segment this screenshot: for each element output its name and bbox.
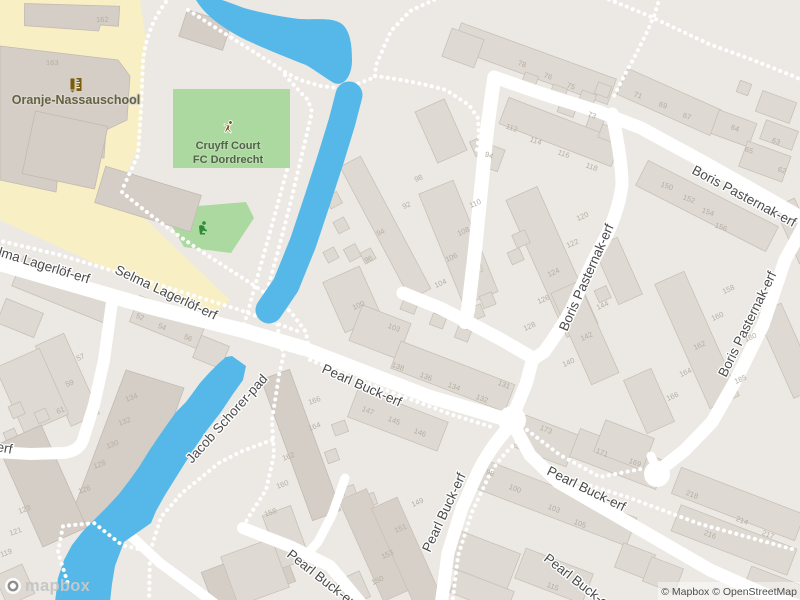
- svg-text:163: 163: [46, 58, 59, 67]
- svg-text:Cruyff Court: Cruyff Court: [196, 140, 261, 152]
- svg-text:FC Dordrecht: FC Dordrecht: [193, 154, 264, 166]
- svg-text:Oranje-Nassauschool: Oranje-Nassauschool: [12, 93, 141, 107]
- svg-text:© Mapbox © OpenStreetMap: © Mapbox © OpenStreetMap: [661, 586, 797, 598]
- svg-text:162: 162: [96, 15, 109, 24]
- svg-text:mapbox: mapbox: [25, 577, 91, 595]
